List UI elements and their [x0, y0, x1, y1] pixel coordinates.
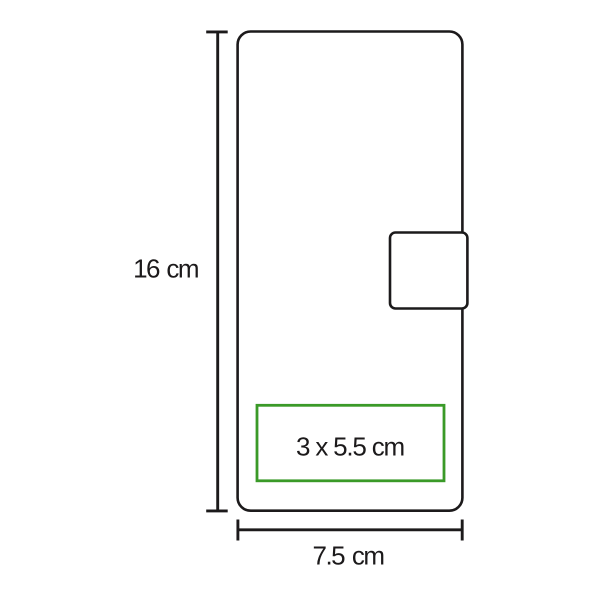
svg-text:3 x 5.5 cm: 3 x 5.5 cm [296, 432, 404, 462]
svg-text:16 cm: 16 cm [133, 254, 198, 284]
svg-text:7.5 cm: 7.5 cm [312, 541, 383, 571]
